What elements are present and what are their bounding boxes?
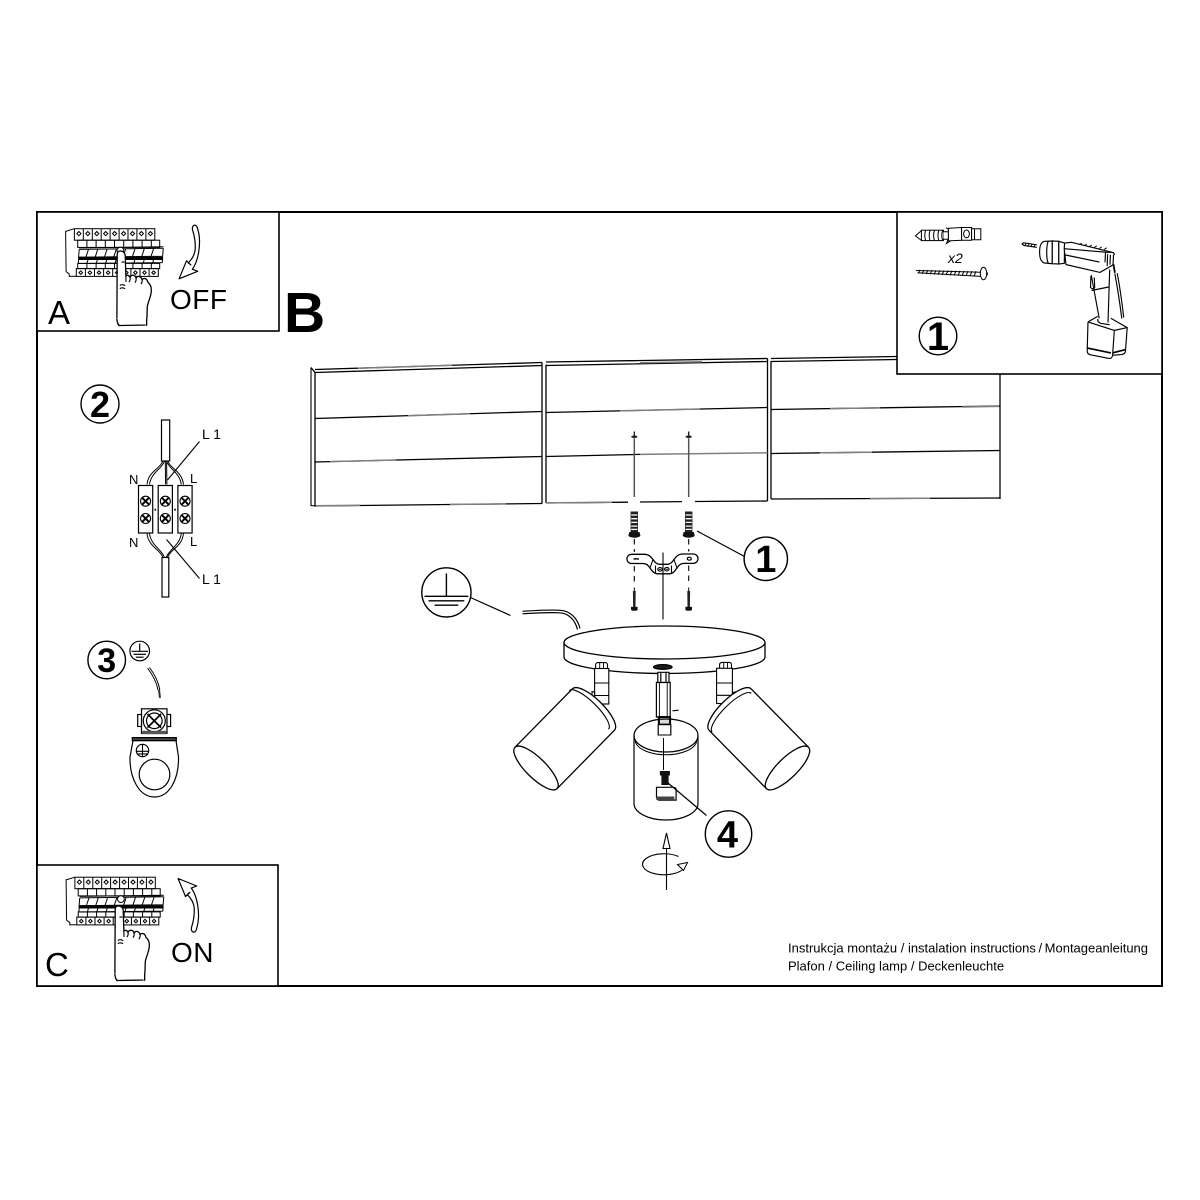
svg-text:L: L bbox=[190, 534, 197, 549]
svg-text:1: 1 bbox=[755, 539, 776, 581]
svg-text:L: L bbox=[190, 471, 197, 486]
svg-text:N: N bbox=[129, 535, 138, 550]
svg-text:C: C bbox=[45, 946, 69, 983]
svg-text:ON: ON bbox=[171, 937, 214, 968]
svg-text:A: A bbox=[48, 294, 70, 331]
svg-text:2: 2 bbox=[90, 384, 110, 425]
svg-text:3: 3 bbox=[97, 642, 116, 680]
svg-text:Instrukcja montażu / instalati: Instrukcja montażu / instalation instruc… bbox=[788, 941, 1148, 956]
svg-text:L 1: L 1 bbox=[202, 426, 221, 442]
svg-text:N: N bbox=[129, 472, 138, 487]
svg-text:4: 4 bbox=[717, 815, 738, 857]
svg-text:L 1: L 1 bbox=[202, 571, 221, 587]
svg-text:OFF: OFF bbox=[170, 284, 228, 315]
svg-text:B: B bbox=[284, 281, 325, 345]
svg-text:x2: x2 bbox=[947, 250, 963, 266]
svg-text:Plafon / Ceiling lamp / Decken: Plafon / Ceiling lamp / Deckenleuchte bbox=[788, 959, 1004, 974]
svg-text:1: 1 bbox=[927, 315, 949, 359]
